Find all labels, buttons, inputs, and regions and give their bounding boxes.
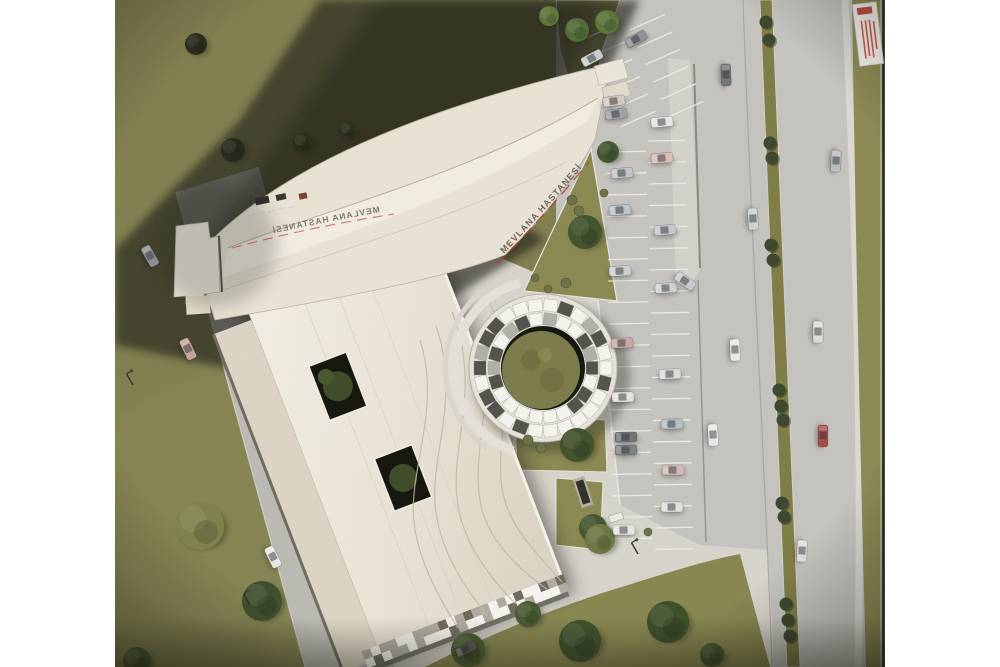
- model-photo: MEVLANA HASTANESİ MEVLANA HASTANESİ: [0, 0, 1000, 667]
- bottom-edge-shade: [115, 617, 885, 667]
- vignette: [115, 0, 885, 667]
- photo-content: MEVLANA HASTANESİ MEVLANA HASTANESİ: [80, 0, 885, 667]
- screenshot-root: MEVLANA HASTANESİ MEVLANA HASTANESİ: [0, 0, 1000, 667]
